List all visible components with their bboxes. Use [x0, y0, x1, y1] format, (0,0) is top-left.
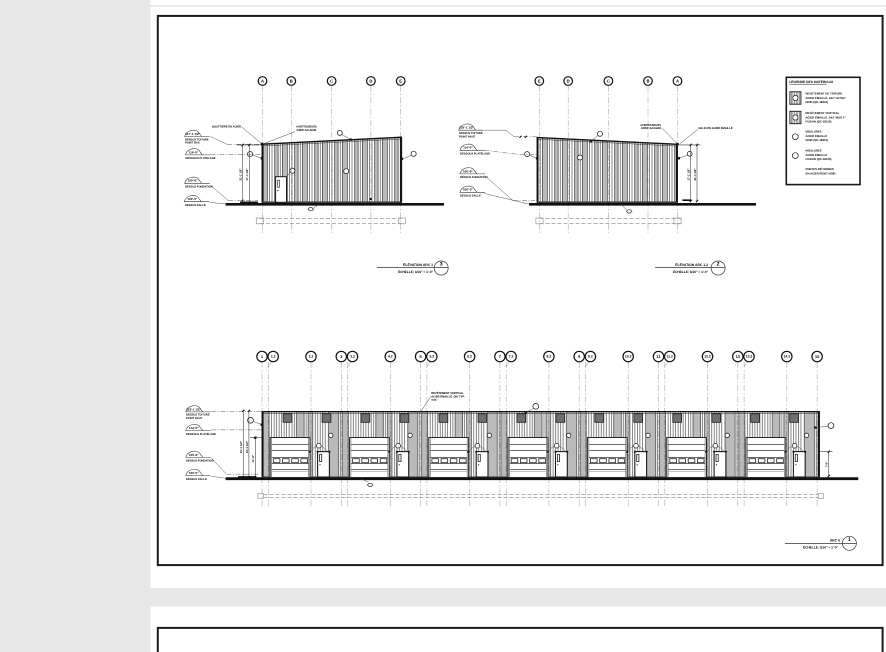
svg-text:DESSUS DALLE: DESSUS DALLE	[185, 204, 206, 207]
svg-text:2.2: 2.2	[309, 355, 314, 359]
svg-text:2: 2	[717, 262, 720, 268]
svg-text:1.2: 1.2	[271, 355, 276, 359]
svg-text:FUSAIN (QC-18316): FUSAIN (QC-18316)	[806, 120, 832, 124]
svg-text:TYP.: TYP.	[431, 399, 437, 402]
svg-text:21'-1 1/2": 21'-1 1/2"	[239, 440, 243, 453]
svg-text:100'-0": 100'-0"	[189, 471, 199, 475]
svg-text:100'-6": 100'-6"	[189, 453, 199, 457]
svg-text:7'-6": 7'-6"	[825, 461, 829, 468]
svg-text:EN ACIER PEINT NOIR: EN ACIER PEINT NOIR	[806, 171, 836, 175]
svg-text:ÉLÉVATION ARC 1: ÉLÉVATION ARC 1	[403, 263, 433, 267]
svg-text:KEEP-SAUGHE: KEEP-SAUGHE	[641, 127, 661, 130]
svg-text:4.2: 4.2	[388, 355, 393, 359]
svg-text:114'-0": 114'-0"	[189, 150, 199, 154]
svg-text:A: A	[676, 79, 679, 84]
svg-text:19'-1 1/2": 19'-1 1/2"	[245, 440, 249, 453]
svg-text:ÉCHELLE: 3/16" = 1'-0": ÉCHELLE: 3/16" = 1'-0"	[673, 270, 709, 274]
svg-text:12.2: 12.2	[704, 355, 711, 359]
svg-text:3.2: 3.2	[350, 355, 355, 359]
svg-text:117'-1 1/2": 117'-1 1/2"	[185, 132, 200, 136]
svg-text:B: B	[290, 79, 293, 84]
svg-text:ÉLÉVATION ARC 1.2: ÉLÉVATION ARC 1.2	[675, 263, 708, 267]
svg-text:100'-6": 100'-6"	[463, 169, 473, 173]
svg-text:D: D	[567, 79, 570, 84]
svg-text:14.2: 14.2	[783, 355, 790, 359]
svg-text:7.2: 7.2	[509, 355, 514, 359]
svg-text:100'-0": 100'-0"	[463, 188, 473, 192]
svg-text:114'-0": 114'-0"	[463, 146, 473, 150]
svg-text:11'-8": 11'-8"	[251, 454, 255, 462]
svg-text:DESSUS FONDATION: DESSUS FONDATION	[186, 460, 214, 463]
svg-text:E: E	[399, 79, 402, 84]
svg-text:9.2: 9.2	[588, 355, 593, 359]
svg-text:21'-1 1/2": 21'-1 1/2"	[239, 168, 243, 181]
svg-text:100'-6": 100'-6"	[188, 179, 198, 183]
svg-text:6.2: 6.2	[467, 355, 472, 359]
svg-text:13: 13	[736, 354, 741, 359]
svg-text:A: A	[261, 79, 264, 84]
svg-text:DESSUS DALLE: DESSUS DALLE	[460, 195, 481, 198]
svg-text:KEEP-SAUGHE: KEEP-SAUGHE	[297, 129, 317, 132]
svg-text:114'-0": 114'-0"	[189, 426, 199, 430]
svg-text:17'-1 1/2": 17'-1 1/2"	[687, 168, 691, 181]
svg-text:GOUTTIÈRE EN ACIER: GOUTTIÈRE EN ACIER	[212, 125, 241, 129]
svg-text:DESSUS FONDATION: DESSUS FONDATION	[460, 176, 488, 179]
svg-text:21'-1 1/2": 21'-1 1/2"	[693, 168, 697, 181]
svg-text:13.2: 13.2	[746, 355, 753, 359]
svg-text:10.2: 10.2	[625, 355, 632, 359]
svg-text:DESSOUS PLATELAGE: DESSOUS PLATELAGE	[186, 433, 216, 436]
svg-text:DESSUS FONDATION: DESSUS FONDATION	[185, 185, 213, 188]
svg-text:FUSAIN (QC-18316): FUSAIN (QC-18316)	[806, 157, 832, 161]
svg-text:15: 15	[815, 354, 820, 359]
svg-text:11.2: 11.2	[666, 355, 673, 359]
svg-text:119'-1 1/2": 119'-1 1/2"	[186, 407, 201, 411]
svg-text:POINT BAS: POINT BAS	[185, 142, 200, 145]
svg-text:119'-1 1/2": 119'-1 1/2"	[459, 126, 474, 130]
svg-text:DESSOUS PLATELAGE: DESSOUS PLATELAGE	[460, 152, 490, 155]
svg-text:POINT HAUT: POINT HAUT	[459, 135, 476, 138]
svg-text:100'-0": 100'-0"	[187, 197, 197, 201]
svg-text:ÉCHELLE: 3/16" = 1'-0": ÉCHELLE: 3/16" = 1'-0"	[803, 545, 839, 549]
svg-text:NOIR (QC-18313): NOIR (QC-18313)	[806, 138, 829, 142]
svg-text:3: 3	[440, 262, 443, 268]
svg-text:POINT HAUT: POINT HAUT	[186, 417, 203, 420]
svg-text:SOLIN EN ACIER ÉMAILLÉ: SOLIN EN ACIER ÉMAILLÉ	[698, 126, 732, 130]
svg-text:8.2: 8.2	[547, 355, 552, 359]
svg-text:C: C	[330, 79, 333, 84]
svg-text:C: C	[607, 79, 610, 84]
svg-text:B: B	[646, 79, 649, 84]
svg-text:ÉCHELLE: 3/16" = 1'-0": ÉCHELLE: 3/16" = 1'-0"	[398, 270, 434, 274]
svg-text:ARC 6: ARC 6	[830, 539, 840, 543]
svg-text:LÉGENDE DES MATÉRIAUX: LÉGENDE DES MATÉRIAUX	[789, 80, 834, 84]
svg-text:E: E	[538, 79, 541, 84]
svg-text:DESSUS DALLE: DESSUS DALLE	[186, 478, 207, 481]
svg-text:5.2: 5.2	[429, 355, 434, 359]
svg-text:NOIR (QC-18316): NOIR (QC-18316)	[806, 100, 829, 104]
svg-text:D: D	[369, 79, 372, 84]
svg-text:1: 1	[848, 537, 851, 543]
svg-text:17'-1 1/2": 17'-1 1/2"	[245, 168, 249, 181]
svg-text:DESSOUS PLATELAGE: DESSOUS PLATELAGE	[186, 157, 216, 160]
